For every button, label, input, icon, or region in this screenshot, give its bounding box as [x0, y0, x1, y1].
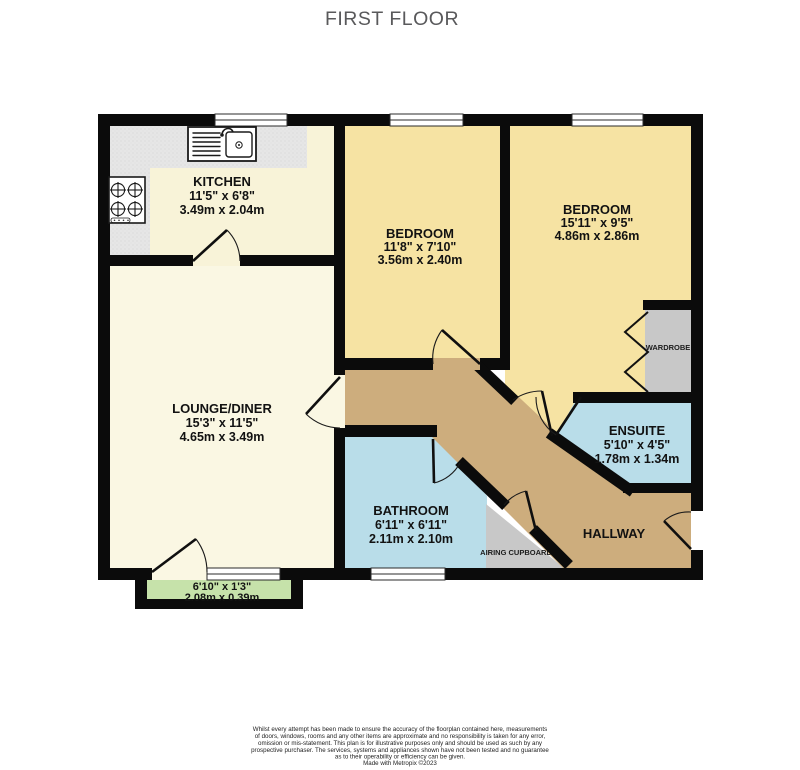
- sink-icon: [188, 127, 256, 161]
- lounge-label: LOUNGE/DINER 15'3" x 11'5" 4.65m x 3.49m: [172, 401, 272, 444]
- disclaimer: Whilst every attempt has been made to en…: [251, 726, 549, 767]
- svg-text:15'11" x 9'5": 15'11" x 9'5": [561, 216, 634, 230]
- stove-icon: [109, 177, 145, 223]
- entrance-door-opening: [691, 511, 703, 550]
- svg-text:2.11m x 2.10m: 2.11m x 2.10m: [369, 532, 453, 546]
- svg-text:2.08m x 0.39m: 2.08m x 0.39m: [185, 592, 260, 604]
- wardrobe-label: WARDROBE: [646, 343, 691, 352]
- svg-text:6'11" x 6'11": 6'11" x 6'11": [375, 518, 447, 532]
- wall-main-vertical: [334, 126, 345, 568]
- svg-text:KITCHEN: KITCHEN: [193, 174, 251, 189]
- bedroom-middle-window: [390, 114, 463, 126]
- bedroom-middle-label: BEDROOM 11'8" x 7'10" 3.56m x 2.40m: [378, 226, 463, 267]
- bedroom-right-label: BEDROOM 15'11" x 9'5" 4.86m x 2.86m: [555, 202, 640, 243]
- svg-text:11'5" x 6'8": 11'5" x 6'8": [189, 189, 255, 203]
- wall-outer-left: [98, 114, 110, 580]
- svg-text:3.56m x 2.40m: 3.56m x 2.40m: [378, 253, 463, 267]
- disclaimer-line: Whilst every attempt has been made to en…: [253, 726, 547, 733]
- kitchen-window: [215, 114, 287, 126]
- wall-wardrobe-top: [643, 300, 703, 310]
- credit-line: Made with Metropix ©2023: [363, 760, 437, 767]
- wall-outer-right: [691, 114, 703, 580]
- svg-text:11'8" x 7'10": 11'8" x 7'10": [384, 240, 457, 254]
- svg-text:1.78m x 1.34m: 1.78m x 1.34m: [595, 452, 680, 466]
- bedroom-right-window: [572, 114, 643, 126]
- airing-cupboard-label: AIRING CUPBOARD: [480, 548, 552, 557]
- svg-text:4.65m x 3.49m: 4.65m x 3.49m: [180, 430, 265, 444]
- bathroom-label: BATHROOM 6'11" x 6'11" 2.11m x 2.10m: [369, 503, 453, 546]
- svg-text:BATHROOM: BATHROOM: [373, 503, 449, 518]
- svg-text:3.49m x 2.04m: 3.49m x 2.04m: [180, 203, 265, 217]
- disclaimer-line: of doors, windows, rooms and any other i…: [255, 733, 546, 740]
- svg-text:15'3" x 11'5": 15'3" x 11'5": [186, 416, 259, 430]
- page-title: FIRST FLOOR: [325, 8, 459, 30]
- floorplan-svg: FIRST FLOOR WARDROBE AIRING CUPBOARD: [0, 0, 800, 770]
- svg-text:BEDROOM: BEDROOM: [563, 202, 631, 217]
- hallway-label: HALLWAY: [583, 526, 646, 541]
- svg-text:BEDROOM: BEDROOM: [386, 226, 454, 241]
- wall-bedroom-divider: [500, 126, 510, 370]
- balcony-window: [207, 568, 280, 580]
- svg-text:5'10" x 4'5": 5'10" x 4'5": [604, 438, 671, 452]
- wall-ensuite-top: [573, 392, 703, 403]
- disclaimer-line: omission or mis-statement. This plan is …: [258, 740, 543, 747]
- svg-text:4.86m x 2.86m: 4.86m x 2.86m: [555, 229, 640, 243]
- svg-text:LOUNGE/DINER: LOUNGE/DINER: [172, 401, 272, 416]
- kitchen-door-opening: [193, 255, 240, 266]
- bathroom-window: [371, 568, 445, 580]
- bedroom-middle-door-opening: [433, 358, 480, 370]
- wall-bathroom-top: [334, 425, 437, 437]
- floorplan-page: FIRST FLOOR WARDROBE AIRING CUPBOARD: [0, 0, 800, 770]
- balcony-label: 6'10" x 1'3" 2.08m x 0.39m: [185, 581, 260, 604]
- balcony-door-opening: [152, 568, 207, 580]
- svg-text:ENSUITE: ENSUITE: [609, 423, 666, 438]
